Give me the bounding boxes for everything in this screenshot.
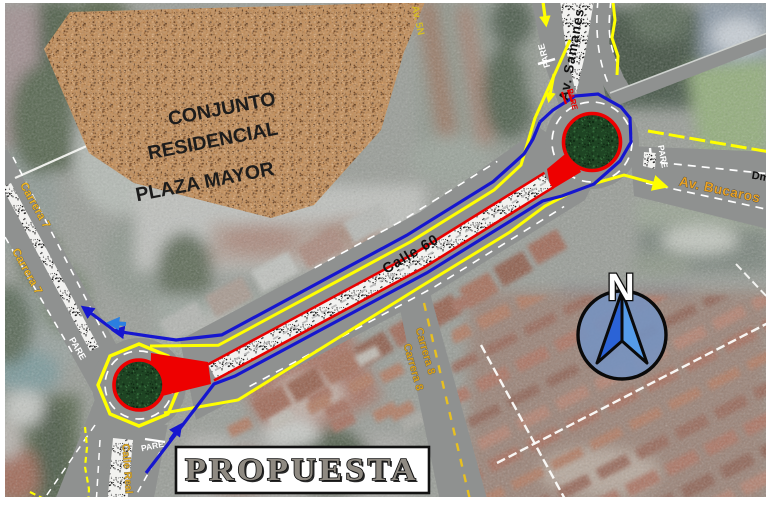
svg-text:PROPUESTA: PROPUESTA [185, 451, 419, 487]
svg-text:N: N [607, 267, 634, 309]
